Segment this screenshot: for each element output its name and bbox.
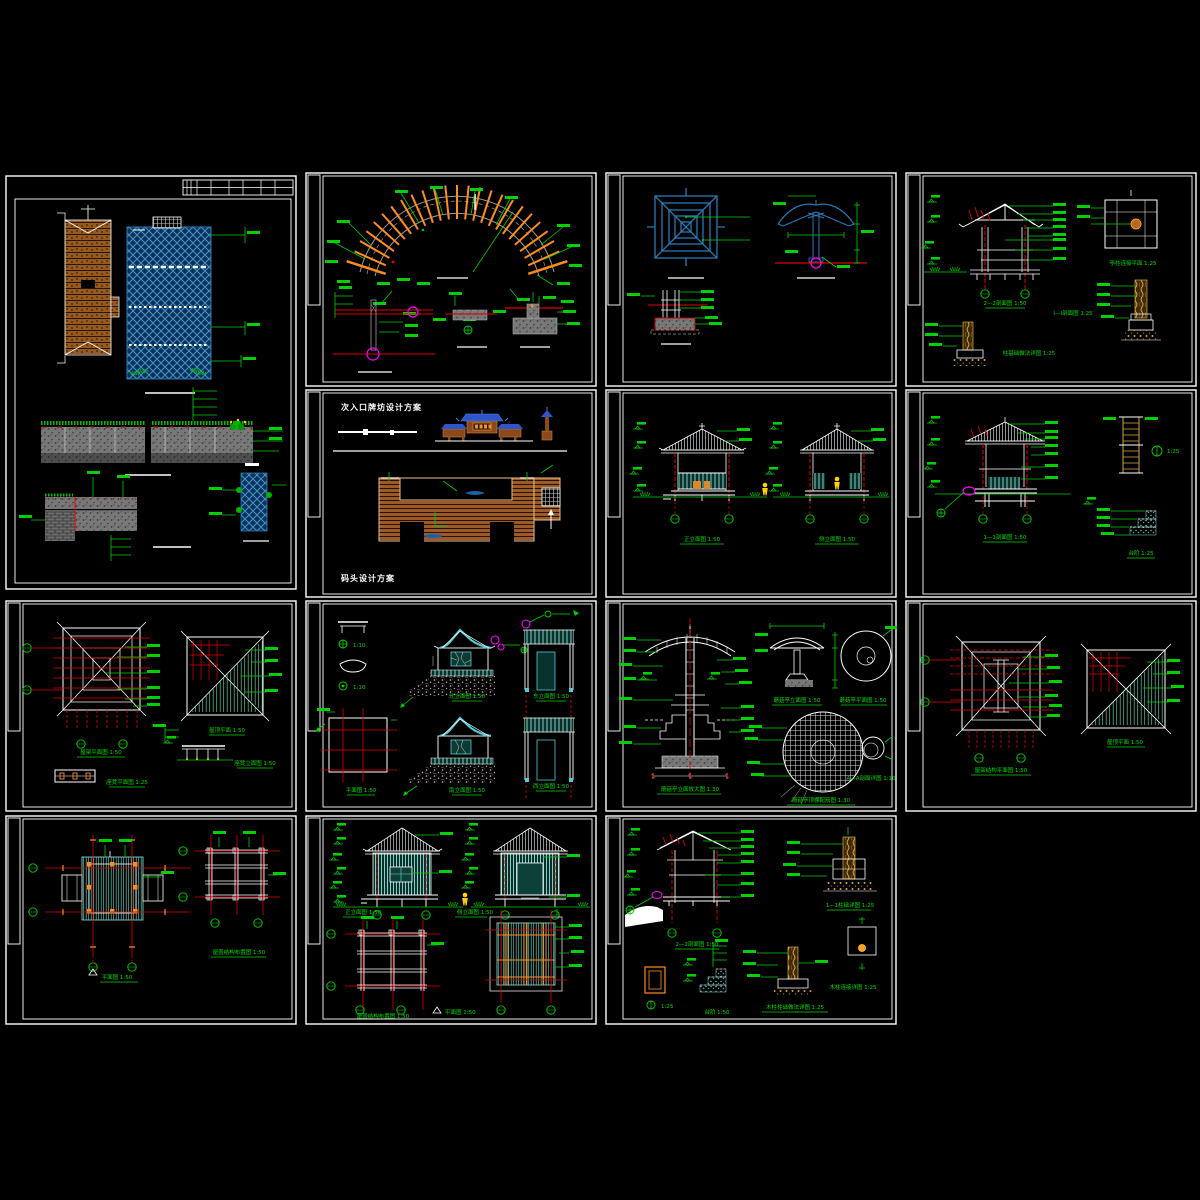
umbrella-elevation: [773, 196, 874, 268]
gazebo-section-drawing: [921, 195, 1109, 298]
umbrella-canvas: [605, 172, 897, 387]
person-figure: [762, 483, 768, 496]
roof-structure-canvas: 屋架结构平面图 1:50 屋顶平面 1:50: [905, 600, 1197, 812]
arch-plan-drawing: [325, 185, 582, 321]
caption-plan: 平面图 1:50: [346, 786, 377, 794]
side-title-strip: [308, 603, 320, 731]
side-title-strip: [308, 392, 320, 517]
caption-roofplan2: 屋顶平面 1:50: [1107, 739, 1144, 746]
sheet-gazebo-elevations: 正立面图 1:50 侧立面图 1:50: [605, 389, 897, 598]
caption-truss-structure: 屋架结构平面图 1:50: [975, 766, 1028, 774]
caption-window-scale: 1:25: [661, 1004, 674, 1010]
caption-section: 2—2剖面图 1:50: [675, 940, 719, 948]
caption-mushroom-plan: 蘑菇亭平面图 1:50: [839, 696, 887, 704]
deck-plan: [29, 835, 190, 971]
gazebo-elev-canvas: 正立面图 1:50 侧立面图 1:50: [605, 389, 897, 598]
bench-plan: [55, 770, 95, 782]
caption-steps: 台阶 1:25: [1128, 549, 1154, 557]
caption-plan: 平面图 1:50: [102, 973, 133, 981]
caption-front: 正立面图 1:50: [684, 535, 721, 543]
title-block-table: [183, 180, 293, 195]
sheet-mushroom-pavilion: 蘑菇亭立面放大图 1:30 蘑菇亭立面图 1:50 蘑菇亭平面图 1:50 蘑菇…: [605, 600, 897, 812]
roof-plan: [1081, 644, 1184, 734]
caption-truss: 屋架平面图 1:50: [80, 748, 122, 756]
column-connection-plan: [1077, 190, 1157, 248]
scale-1-10-b: 1:10: [353, 685, 366, 691]
lamp-tower: [541, 407, 553, 440]
scale-1-10-a: 1:10: [353, 643, 366, 649]
pavilion-plan-canvas: 平面图 1:50 屋盖结构布置图 1:50: [5, 815, 297, 1025]
dock-title: 码头设计方案: [341, 573, 395, 583]
truss-plan: [23, 622, 160, 748]
caption-south: 南立面图 1:50: [449, 786, 486, 794]
caption-connection: 木柱连接详图 1:25: [829, 983, 877, 991]
entrance-title: 次入口牌坊设计方案: [341, 402, 422, 412]
structure-grid: [179, 831, 286, 927]
section-drawing: [923, 416, 1070, 523]
hut-elev-canvas: 正立面图 1:50 侧立面图 1:50 屋盖结构布置图 1:50 平面图 1:5…: [305, 815, 597, 1025]
caption-north: 北立面图 1:50: [449, 692, 486, 700]
sheet-pavilion-section: 2—2剖面图 1:50 亭柱连接平面 1:25 Ⅰ—Ⅰ剖面图 1:25 柱基础做…: [905, 172, 1197, 387]
sheet-hut-elevations: 正立面图 1:50 侧立面图 1:50 屋盖结构布置图 1:50 平面图 1:5…: [305, 815, 597, 1025]
side-title-strip: [308, 818, 320, 944]
caption-base: 柱基础做法详图 1:25: [1003, 349, 1056, 357]
sheet-waterfront-details: [5, 175, 297, 590]
caption-connection: 亭柱连接平面 1:25: [1109, 259, 1157, 267]
bridge-deck-plan: [57, 205, 119, 363]
sheet-entrance-dock: 次入口牌坊设计方案 码头设计方案: [305, 389, 597, 598]
roof-structure-grid: [327, 916, 444, 1014]
side-title-strip: [608, 603, 620, 731]
gatehouse-canvas: 1:10 1:10 北立面图 1:50 东立面图 1:50 南立面图 1:50 …: [305, 600, 597, 812]
truss-structure-plan: [921, 636, 1062, 762]
caption-side: 侧立面图 1:50: [819, 535, 856, 543]
sheet-pavilion-plan: 平面图 1:50 屋盖结构布置图 1:50: [5, 815, 297, 1025]
caption-enlarged: 蘑菇亭立面放大图 1:30: [661, 785, 720, 793]
gazebo-section-canvas: 1—1剖面图 1:50 1:25 台阶 1:25: [905, 389, 1197, 598]
caption-scale: 1:25: [1167, 449, 1180, 455]
person-figure: [462, 893, 468, 906]
caption-structure: 屋盖结构布置图 1:50: [213, 948, 266, 956]
gate-elevation: [435, 410, 533, 441]
column-base-detail-top: [783, 827, 877, 891]
roof-framing-canvas: 屋架平面图 1:50 屋顶平面 1:50 座凳立面图 1:50 座凳平面图 1:…: [5, 600, 297, 812]
side-title-strip: [908, 603, 920, 731]
scale-bar: [338, 429, 417, 435]
foundation-detail: [627, 290, 722, 334]
sheet-arch-pergola: [305, 172, 597, 387]
caption-base-mid: 木柱柱础做法详图 1:25: [766, 1003, 825, 1011]
mushroom-plan-small: [841, 626, 897, 681]
hut-section-drawing: [623, 828, 754, 937]
caption-hut-front: 正立面图 1:50: [345, 908, 382, 916]
side-title-strip: [908, 392, 920, 517]
plan-marker-icon: [433, 1007, 441, 1013]
hut-section-canvas: 2—2剖面图 1:50 1—1柱础详图 1:25 木柱柱础做法详图 1:25 1…: [605, 815, 897, 1025]
side-title-strip: [608, 392, 620, 517]
roof-plan: [181, 631, 282, 721]
caption-base-top: 1—1柱础详图 1:25: [826, 901, 875, 909]
gazebo-side-elevation: [765, 422, 886, 523]
revetment-elevation: [41, 387, 283, 465]
wall-section-detail: [19, 471, 137, 561]
sheet-umbrella-pavilion: [605, 172, 897, 387]
sheet-gatehouse: 1:10 1:10 北立面图 1:50 东立面图 1:50 南立面图 1:50 …: [305, 600, 597, 812]
side-title-strip: [308, 175, 320, 305]
plan-drawing: [315, 708, 397, 782]
sheet-hut-section: 2—2剖面图 1:50 1—1柱础详图 1:25 木柱柱础做法详图 1:25 1…: [605, 815, 897, 1025]
caption-hutplan: 平面图 1:50: [445, 1008, 476, 1016]
arch-pergola-canvas: [305, 172, 597, 387]
column-base-detail-left: [925, 322, 987, 366]
caption-aa: A—A剖面详图 1:10: [846, 774, 896, 782]
post-detail: [1103, 417, 1162, 473]
hut-plan: [485, 909, 584, 1014]
caption-I-I: Ⅰ—Ⅰ剖面图 1:25: [1053, 309, 1093, 317]
roof-plan-square: [647, 188, 750, 266]
caption-hut-side: 侧立面图 1:50: [457, 908, 494, 916]
south-elevation: [403, 718, 495, 796]
caption-west: 西立面图 1:50: [533, 782, 570, 790]
gazebo-front-elevation: [629, 422, 752, 523]
column-base-detail-mid: [743, 947, 828, 996]
waterfront-canvas: [5, 175, 297, 590]
mushroom-elevation-small: [755, 623, 838, 688]
dock-plan: [379, 465, 560, 542]
pier-detail: [209, 463, 286, 541]
caption-bench-elev: 座凳立面图 1:50: [234, 759, 276, 767]
mushroom-canvas: 蘑菇亭立面放大图 1:30 蘑菇亭立面图 1:50 蘑菇亭平面图 1:50 蘑菇…: [605, 600, 897, 812]
caption-rebar: 蘑菇亭顶棚配筋图 1:30: [792, 796, 851, 804]
caption-grid: 屋盖结构布置图 1:50: [357, 1012, 410, 1020]
footing-detail: [505, 292, 580, 347]
beam-connection-detail: [333, 278, 435, 372]
caption-section: 2—2剖面图 1:50: [983, 299, 1027, 307]
caption-roofplan: 屋顶平面 1:50: [209, 727, 246, 734]
pond-plan: [127, 217, 260, 379]
pavilion-section-canvas: 2—2剖面图 1:50 亭柱连接平面 1:25 Ⅰ—Ⅰ剖面图 1:25 柱基础做…: [905, 172, 1197, 387]
canopy-rebar-plan: [745, 712, 863, 804]
sheet-roof-structure: 屋架结构平面图 1:50 屋顶平面 1:50: [905, 600, 1197, 812]
side-title-strip: [908, 175, 920, 305]
caption-mushroom-elev: 蘑菇亭立面图 1:50: [773, 696, 821, 704]
caption-east: 东立面图 1:50: [533, 692, 570, 700]
column-base-detail-right: [1097, 280, 1161, 340]
terrain-blob: [625, 906, 663, 927]
sheet-gazebo-section: 1—1剖面图 1:50 1:25 台阶 1:25: [905, 389, 1197, 598]
caption-section: 1—1剖面图 1:50: [983, 533, 1027, 541]
joint-detail: [445, 292, 497, 347]
post-connection-detail: [848, 917, 876, 970]
entrance-dock-canvas: 次入口牌坊设计方案 码头设计方案: [305, 389, 597, 598]
steps-detail: [1083, 497, 1156, 535]
east-elevation: [522, 610, 579, 720]
aa-section-blob: [862, 736, 893, 760]
sheet-roof-framing-bench: 屋架平面图 1:50 屋顶平面 1:50 座凳立面图 1:50 座凳平面图 1:…: [5, 600, 297, 812]
side-title-strip: [8, 818, 20, 944]
caption-steps: 台阶 1:50: [704, 1008, 730, 1016]
window-detail: [645, 967, 665, 1009]
side-title-strip: [608, 175, 620, 305]
side-title-strip: [608, 818, 620, 944]
side-title-strip: [8, 603, 20, 731]
mushroom-section-large: [619, 618, 754, 779]
caption-bench-plan: 座凳平面图 1:25: [106, 778, 148, 786]
hut-front-elevation: [329, 823, 453, 919]
